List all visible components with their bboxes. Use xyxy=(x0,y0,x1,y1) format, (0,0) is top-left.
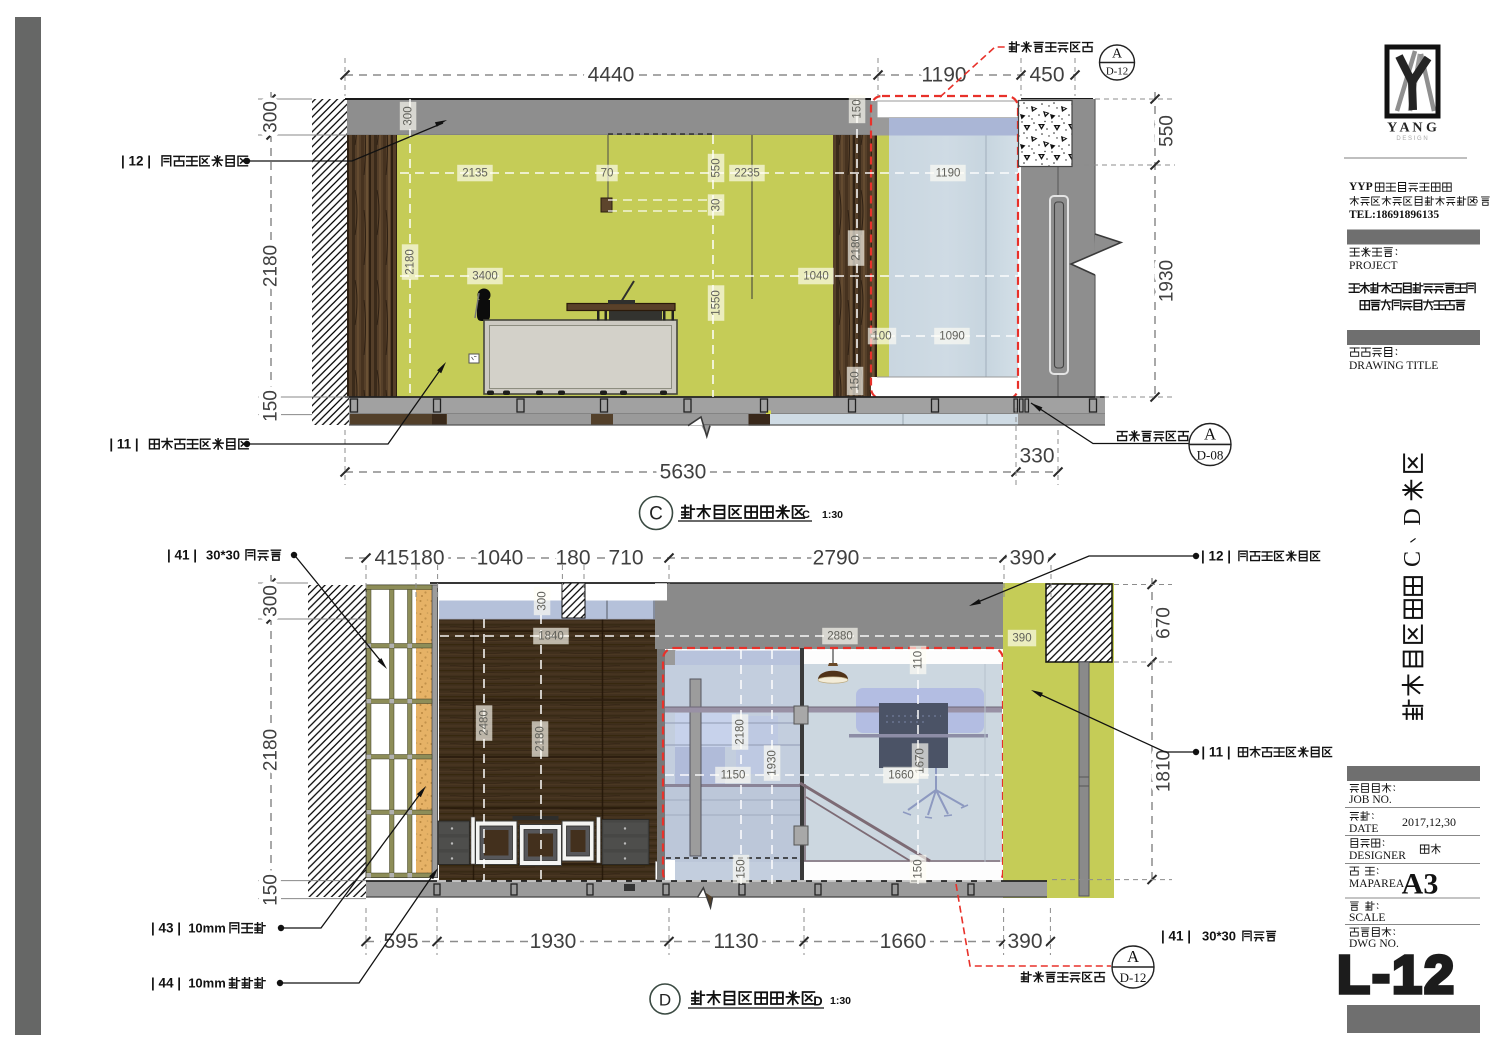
svg-text:150: 150 xyxy=(850,371,862,390)
svg-text:PROJECT: PROJECT xyxy=(1349,260,1398,272)
svg-text:10mm: 10mm xyxy=(188,921,226,936)
svg-text:2180: 2180 xyxy=(405,249,417,275)
svg-text:150: 150 xyxy=(736,859,748,878)
svg-text:C: C xyxy=(1400,551,1426,567)
svg-text:1150: 1150 xyxy=(721,770,746,782)
svg-text:330: 330 xyxy=(1019,445,1054,468)
svg-text:150: 150 xyxy=(913,859,925,878)
svg-text:390: 390 xyxy=(1012,633,1031,645)
svg-text:1810: 1810 xyxy=(1154,750,1175,792)
svg-text:1040: 1040 xyxy=(803,271,829,283)
svg-text:D: D xyxy=(659,991,671,1010)
svg-text:2180: 2180 xyxy=(851,235,863,261)
svg-text:390: 390 xyxy=(1009,547,1044,570)
svg-text:D-12: D-12 xyxy=(1120,970,1147,985)
svg-text:1930: 1930 xyxy=(767,750,779,776)
svg-text:300: 300 xyxy=(403,106,415,125)
svg-text:110: 110 xyxy=(913,651,925,669)
svg-text:1190: 1190 xyxy=(921,64,966,87)
svg-text:450: 450 xyxy=(1029,64,1064,87)
svg-text:4440: 4440 xyxy=(588,64,635,87)
svg-text:D-12: D-12 xyxy=(1106,65,1128,77)
svg-text:1:30: 1:30 xyxy=(830,995,851,1007)
svg-text:L-12: L-12 xyxy=(1337,945,1456,1005)
svg-text:| 11 |: | 11 | xyxy=(109,437,138,452)
svg-text:30: 30 xyxy=(711,199,723,212)
svg-text:D-08: D-08 xyxy=(1197,448,1224,463)
svg-text:2017,12,30: 2017,12,30 xyxy=(1402,815,1456,829)
svg-text:390: 390 xyxy=(1007,930,1042,953)
svg-text:| 44 |: | 44 | xyxy=(151,976,181,991)
svg-text:550: 550 xyxy=(711,158,723,177)
svg-text:670: 670 xyxy=(1154,607,1175,639)
svg-text:1:30: 1:30 xyxy=(822,509,843,521)
svg-text:300: 300 xyxy=(261,101,282,133)
svg-text:A: A xyxy=(1204,425,1216,444)
svg-text:1930: 1930 xyxy=(1157,260,1178,302)
svg-text:3400: 3400 xyxy=(472,271,498,283)
svg-text:| 11 |: | 11 | xyxy=(1201,745,1230,760)
svg-text:550: 550 xyxy=(1157,115,1178,147)
svg-text:| 41 |: | 41 | xyxy=(1161,929,1191,944)
svg-text:C: C xyxy=(802,509,810,521)
svg-text:DRAWING TITLE: DRAWING TITLE xyxy=(1349,360,1438,372)
svg-text:30*30: 30*30 xyxy=(206,548,240,563)
svg-text:1130: 1130 xyxy=(713,930,758,953)
svg-text:TEL:18691896135: TEL:18691896135 xyxy=(1349,209,1439,221)
svg-text:D: D xyxy=(813,994,822,1009)
svg-text:1190: 1190 xyxy=(936,168,961,180)
svg-text:DESIGNER: DESIGNER xyxy=(1349,850,1406,862)
svg-text:180: 180 xyxy=(555,547,590,570)
svg-text:70: 70 xyxy=(601,168,614,180)
svg-text:2135: 2135 xyxy=(462,168,488,180)
svg-text:2180: 2180 xyxy=(261,729,282,771)
svg-text:1930: 1930 xyxy=(530,930,577,953)
svg-text:1840: 1840 xyxy=(538,631,564,643)
svg-text:2790: 2790 xyxy=(813,547,860,570)
svg-text:A: A xyxy=(1127,947,1139,966)
svg-text:| 43 |: | 43 | xyxy=(151,921,181,936)
svg-text:1040: 1040 xyxy=(477,547,524,570)
svg-text:2180: 2180 xyxy=(261,245,282,287)
svg-text:1550: 1550 xyxy=(711,290,723,316)
svg-text:| 41 |: | 41 | xyxy=(167,548,197,563)
svg-text:2480: 2480 xyxy=(479,710,491,736)
svg-text:10mm: 10mm xyxy=(188,976,226,991)
svg-text:150: 150 xyxy=(852,99,864,118)
svg-text:1660: 1660 xyxy=(888,770,914,782)
svg-text:C: C xyxy=(649,504,663,525)
svg-text:100: 100 xyxy=(872,331,891,343)
svg-text:150: 150 xyxy=(261,874,282,906)
svg-text:595: 595 xyxy=(383,930,418,953)
svg-text:JOB NO.: JOB NO. xyxy=(1349,794,1392,806)
svg-text:Y A N G: Y A N G xyxy=(1387,121,1437,136)
svg-text:A3: A3 xyxy=(1402,868,1439,901)
svg-text:2235: 2235 xyxy=(734,168,760,180)
svg-text:2180: 2180 xyxy=(535,726,547,752)
svg-text:30*30: 30*30 xyxy=(1202,929,1236,944)
svg-text:2880: 2880 xyxy=(827,631,853,643)
svg-text:| 12 |: | 12 | xyxy=(121,154,151,169)
svg-text:710: 710 xyxy=(608,547,643,570)
svg-text:SCALE: SCALE xyxy=(1349,912,1385,924)
svg-text:180: 180 xyxy=(409,547,444,570)
svg-text:6: 6 xyxy=(1472,196,1478,207)
svg-text:1090: 1090 xyxy=(939,331,965,343)
svg-text:300: 300 xyxy=(537,591,549,610)
svg-text:DATE: DATE xyxy=(1349,823,1378,835)
svg-text:5630: 5630 xyxy=(660,461,707,484)
svg-text:| 12 |: | 12 | xyxy=(1201,549,1231,564)
svg-text:2180: 2180 xyxy=(735,719,747,745)
svg-text:YYP: YYP xyxy=(1349,181,1373,193)
svg-text:D E S I G N: D E S I G N xyxy=(1396,136,1427,142)
svg-text:415: 415 xyxy=(374,547,409,570)
svg-text:D: D xyxy=(1400,508,1426,525)
svg-text:1660: 1660 xyxy=(880,930,927,953)
svg-text:MAPAREA: MAPAREA xyxy=(1349,878,1405,890)
svg-text:300: 300 xyxy=(261,585,282,617)
svg-text:150: 150 xyxy=(261,390,282,422)
svg-text:A: A xyxy=(1112,46,1123,61)
